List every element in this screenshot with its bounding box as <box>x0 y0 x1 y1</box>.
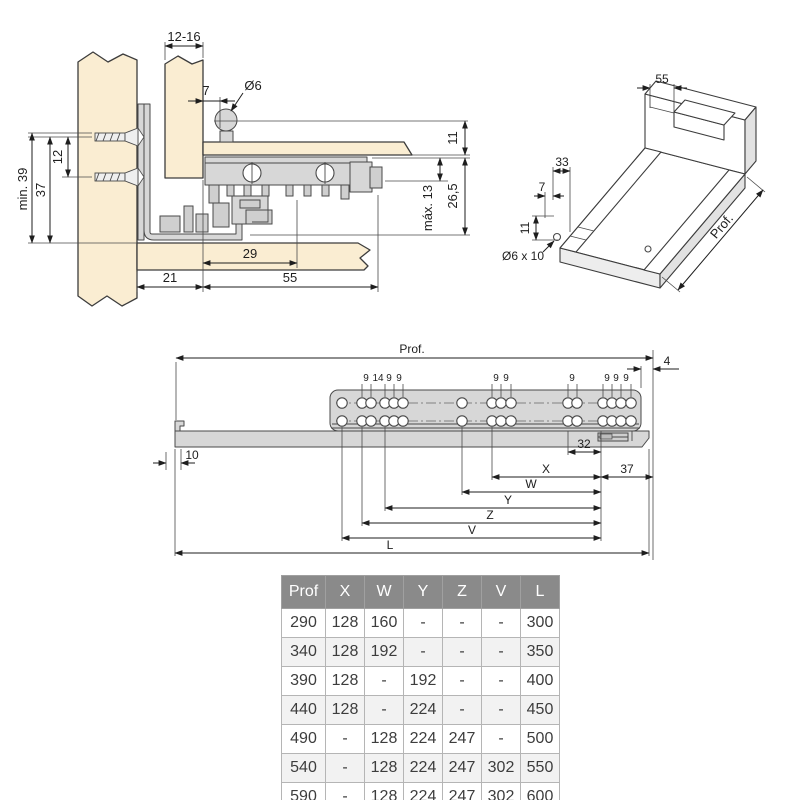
table-header-cell: Z <box>443 576 482 609</box>
table-cell: - <box>326 725 365 754</box>
dimension-spec-table: ProfXWYZVL 290128160---300340128192---35… <box>281 575 560 800</box>
table-cell: - <box>482 725 521 754</box>
table-row: 390128-192--400 <box>282 667 560 696</box>
pitch-label: 9 <box>604 373 610 384</box>
pitch-label: 9 <box>623 373 629 384</box>
iso-front-hole <box>554 234 561 241</box>
table-cell: - <box>365 667 404 696</box>
slide-upper-body <box>205 157 367 185</box>
slide-mechanism-detail <box>160 185 349 232</box>
table-cell: 390 <box>282 667 326 696</box>
pitch-label: 9 <box>493 373 499 384</box>
pitch-label: 9 <box>503 373 509 384</box>
table-cell: 160 <box>365 609 404 638</box>
dim-x: X <box>542 462 550 476</box>
pitch-label: 9 <box>386 373 392 384</box>
table-cell: 600 <box>521 783 560 800</box>
drawings-canvas: 12-16 7 Ø6 12 37 min. 39 11 26,5 máx. 13… <box>0 0 800 568</box>
table-cell: - <box>404 638 443 667</box>
table-cell: 590 <box>282 783 326 800</box>
table-header-cell: X <box>326 576 365 609</box>
table-header-cell: W <box>365 576 404 609</box>
drawer-bottom-panel <box>203 142 412 155</box>
table-cell: - <box>443 667 482 696</box>
table-header-cell: V <box>482 576 521 609</box>
table-cell: 350 <box>521 638 560 667</box>
dim-slide-depth: 55 <box>283 270 297 285</box>
drawer-front-panel <box>165 56 203 178</box>
dim-z: Z <box>486 508 493 522</box>
table-cell: - <box>482 638 521 667</box>
side-view-drawing: 9 14 9 9 9 9 9 9 9 9 Prof. 4 10 <box>153 342 679 560</box>
table-cell: 302 <box>482 754 521 783</box>
spec-table-body: 290128160---300340128192---350390128-192… <box>282 609 560 800</box>
iso-view-drawing: 55 33 7 11 Ø6 x 10 Prof. <box>502 72 765 292</box>
dim-y: Y <box>504 493 512 507</box>
pitch-label: 9 <box>569 373 575 384</box>
table-row: 490-128224247-500 <box>282 725 560 754</box>
table-header-cell: L <box>521 576 560 609</box>
table-cell: 224 <box>404 696 443 725</box>
table-cell: 440 <box>282 696 326 725</box>
dim-max-clearance: máx. 13 <box>420 185 435 231</box>
dim-bottom-thickness: 11 <box>445 131 460 145</box>
dim-front-thickness: 12-16 <box>167 29 200 44</box>
dim-front-gap: 4 <box>664 354 671 368</box>
table-cell: 550 <box>521 754 560 783</box>
table-cell: - <box>326 754 365 783</box>
table-cell: 224 <box>404 783 443 800</box>
iso-side-hole <box>645 246 651 252</box>
dim-hook-offset: 29 <box>243 246 257 261</box>
table-cell: - <box>482 609 521 638</box>
table-cell: 400 <box>521 667 560 696</box>
table-cell: 192 <box>365 638 404 667</box>
table-row: 590-128224247302600 <box>282 783 560 800</box>
locating-pin <box>215 109 237 142</box>
table-cell: 540 <box>282 754 326 783</box>
dim-depth: Prof. <box>399 342 424 356</box>
dim-notch-length: 33 <box>555 155 569 169</box>
table-cell: 300 <box>521 609 560 638</box>
table-cell: 128 <box>365 725 404 754</box>
table-header-cell: Y <box>404 576 443 609</box>
table-cell: 500 <box>521 725 560 754</box>
dim-front-height: 11 <box>518 221 532 234</box>
table-cell: - <box>443 696 482 725</box>
dim-hole-spec: Ø6 x 10 <box>502 249 544 263</box>
table-cell: 128 <box>326 609 365 638</box>
dim-notch-offset: 7 <box>539 180 546 194</box>
table-cell: 340 <box>282 638 326 667</box>
table-cell: 128 <box>365 783 404 800</box>
table-header-row: ProfXWYZVL <box>282 576 560 609</box>
pitch-label: 9 <box>613 373 619 384</box>
table-cell: 128 <box>326 638 365 667</box>
table-row: 290128160---300 <box>282 609 560 638</box>
table-cell: 247 <box>443 725 482 754</box>
dim-front-offset: 10 <box>185 448 199 462</box>
rail-latch-detail <box>598 431 632 441</box>
table-cell: 128 <box>326 696 365 725</box>
dim-pin-offset: 7 <box>202 83 209 98</box>
table-cell: - <box>404 609 443 638</box>
table-row: 540-128224247302550 <box>282 754 560 783</box>
table-cell: - <box>326 783 365 800</box>
technical-sheet-page: 12-16 7 Ø6 12 37 min. 39 11 26,5 máx. 13… <box>0 0 800 800</box>
dim-screw-spacing: 12 <box>50 150 65 164</box>
table-cell: 128 <box>326 667 365 696</box>
dim-v: V <box>468 523 476 537</box>
table-cell: 224 <box>404 754 443 783</box>
table-cell: 128 <box>365 754 404 783</box>
dim-rear-offset: 37 <box>620 462 634 476</box>
table-cell: - <box>443 609 482 638</box>
table-row: 340128192---350 <box>282 638 560 667</box>
table-cell: 192 <box>404 667 443 696</box>
dim-notch-width: 55 <box>655 72 669 86</box>
pitch-label: 9 <box>363 373 369 384</box>
dim-screw-height: 37 <box>33 183 48 197</box>
table-cell: - <box>482 667 521 696</box>
table-cell: 450 <box>521 696 560 725</box>
table-cell: 247 <box>443 754 482 783</box>
table-cell: - <box>482 696 521 725</box>
dim-w: W <box>525 477 537 491</box>
cross-section-drawing: 12-16 7 Ø6 12 37 min. 39 11 26,5 máx. 13… <box>15 29 470 306</box>
dim-rear-pitch: 32 <box>577 437 591 451</box>
dim-slide-height: 26,5 <box>445 183 460 208</box>
dim-l: L <box>387 538 394 552</box>
table-cell: 224 <box>404 725 443 754</box>
dim-min-height: min. 39 <box>15 168 30 211</box>
rail-front-hook <box>175 421 184 431</box>
dim-pin-diameter: Ø6 <box>244 78 261 93</box>
table-cell: 302 <box>482 783 521 800</box>
slide-body <box>330 390 641 431</box>
table-cell: - <box>365 696 404 725</box>
table-header-cell: Prof <box>282 576 326 609</box>
table-cell: - <box>443 638 482 667</box>
table-cell: 290 <box>282 609 326 638</box>
pitch-label: 9 <box>396 373 402 384</box>
pitch-label: 14 <box>372 373 384 384</box>
table-cell: 490 <box>282 725 326 754</box>
table-row: 440128-224--450 <box>282 696 560 725</box>
dim-back-offset: 21 <box>163 270 177 285</box>
table-cell: 247 <box>443 783 482 800</box>
